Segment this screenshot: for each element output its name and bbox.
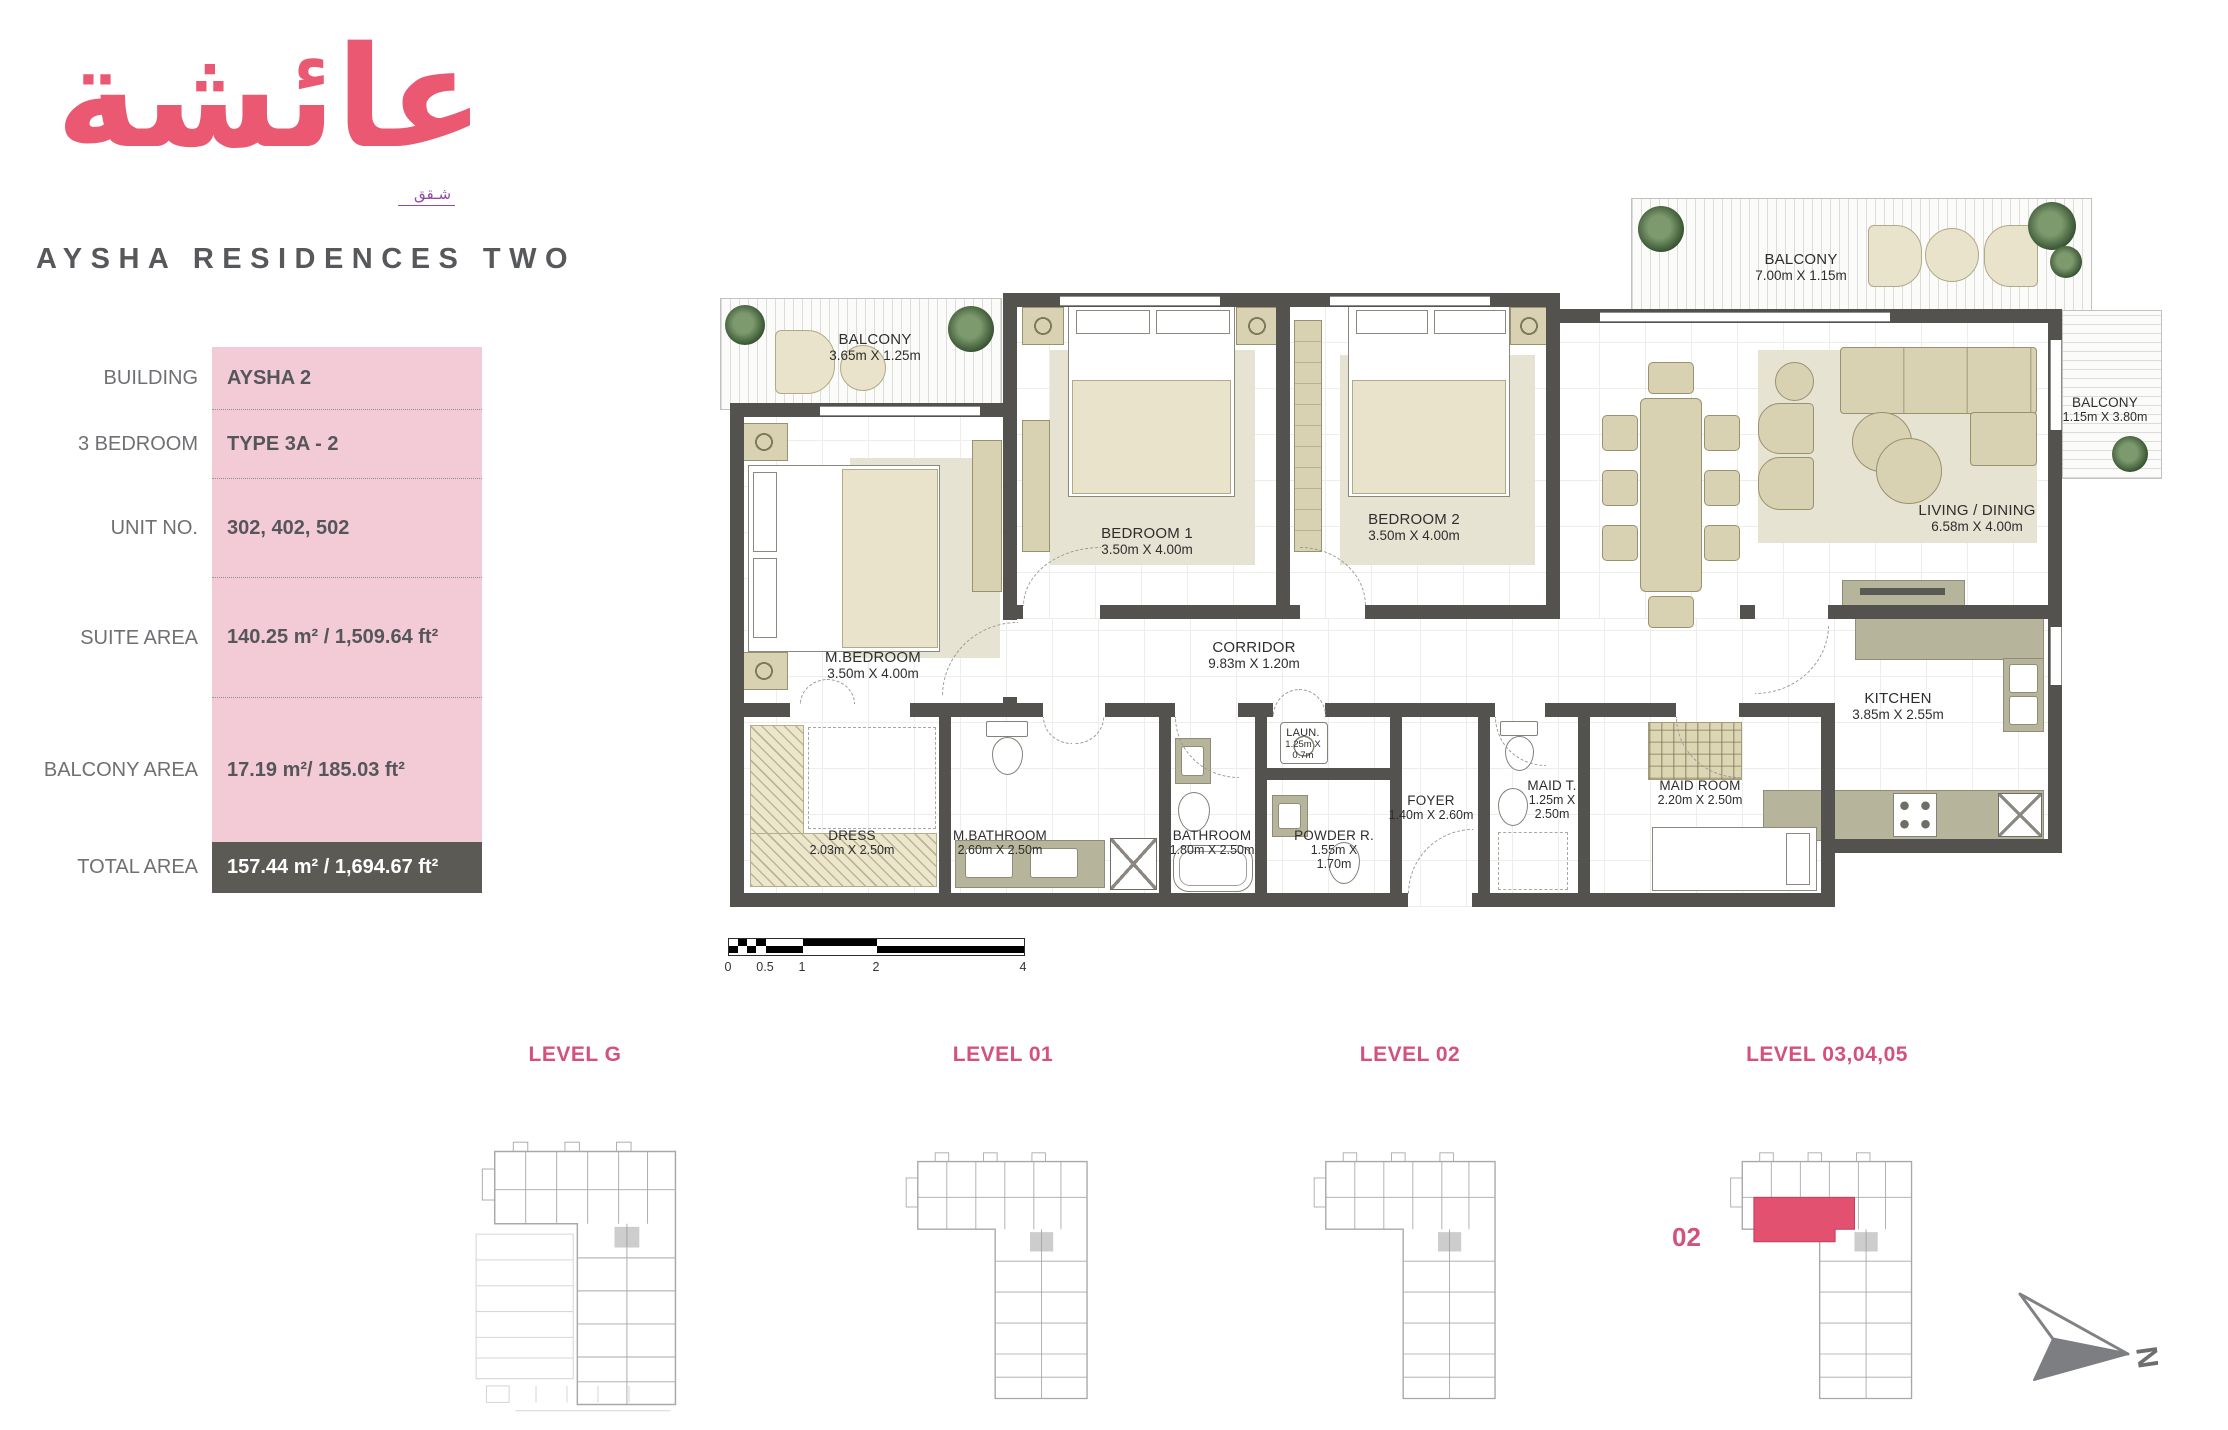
info-value: 302, 402, 502 — [212, 479, 482, 578]
coffee-table — [1876, 438, 1942, 504]
scale-label-1: 1 — [799, 960, 806, 974]
pillow — [753, 558, 777, 638]
pouf — [1775, 362, 1814, 401]
balcony-chair — [775, 330, 835, 394]
room-label-maid-room: MAID ROOM 2.20m X 2.50m — [1658, 778, 1743, 807]
pillow — [1786, 833, 1810, 885]
brand-title: AYSHA RESIDENCES TWO — [36, 243, 576, 276]
kitchen-counter-top — [1855, 618, 2044, 660]
window — [1060, 296, 1220, 306]
nightstand — [1510, 307, 1548, 345]
wall — [1255, 703, 1267, 907]
wall — [1003, 697, 1017, 717]
dining-chair — [1648, 362, 1694, 394]
scale-cell — [729, 939, 738, 946]
info-label: UNIT NO. — [0, 479, 212, 578]
scale-bar — [728, 938, 1025, 956]
dining-table — [1640, 398, 1702, 592]
blanket — [1072, 380, 1231, 494]
wall — [1821, 703, 1835, 907]
pillow — [1156, 310, 1230, 334]
wall — [910, 703, 1043, 717]
room-label-bedroom1: BEDROOM 1 3.50m X 4.00m — [1101, 525, 1193, 557]
blanket — [842, 469, 938, 648]
room-label-kitchen: KITCHEN 3.85m X 2.55m — [1852, 690, 1944, 722]
nightstand — [740, 423, 788, 461]
info-value: 140.25 m² / 1,509.64 ft² — [212, 578, 482, 698]
plant — [2028, 202, 2076, 250]
dining-chair — [1704, 525, 1740, 561]
wall — [1267, 768, 1402, 780]
nightstand — [1022, 307, 1064, 345]
info-row-balcony-area: BALCONY AREA 17.19 m²/ 185.03 ft² — [0, 698, 482, 842]
info-value: TYPE 3A - 2 — [212, 410, 482, 479]
shower-dashed — [1498, 832, 1568, 890]
wall — [1472, 893, 1835, 907]
dining-chair — [1602, 525, 1638, 561]
plant — [2050, 246, 2082, 278]
pillow — [1356, 310, 1428, 334]
sink-basin — [1278, 803, 1301, 829]
wall — [939, 717, 951, 907]
window — [820, 406, 980, 416]
key-plan-level-02 — [1288, 1118, 1528, 1413]
info-row-suite-area: SUITE AREA 140.25 m² / 1,509.64 ft² — [0, 578, 482, 698]
info-label: BUILDING — [0, 347, 212, 410]
room-label-powder: POWDER R. 1.55m X 1.70m — [1294, 828, 1374, 871]
nightstand — [1236, 307, 1278, 345]
room-label-balcony-side: BALCONY 1.15m X 3.80m — [2063, 395, 2148, 424]
nightstand — [740, 652, 788, 690]
logo-arabic: عائشة — [55, 18, 485, 179]
scale-label-2: 2 — [873, 960, 880, 974]
wall — [1545, 703, 1676, 717]
room-label-corridor: CORRIDOR 9.83m X 1.20m — [1208, 639, 1300, 671]
scale-cell — [766, 946, 803, 953]
info-value: 17.19 m²/ 185.03 ft² — [212, 698, 482, 842]
logo-arabic-subtitle: شـقق — [398, 185, 455, 206]
blanket — [1352, 380, 1506, 494]
tv — [1860, 588, 1945, 595]
dress-hanging — [808, 727, 936, 829]
sofa-vertical — [1970, 412, 2037, 466]
scale-cell — [756, 946, 766, 953]
info-row-building: BUILDING AYSHA 2 — [0, 347, 482, 410]
pillow — [753, 472, 777, 552]
dining-chair — [1602, 470, 1638, 506]
wall — [1828, 605, 2062, 619]
dining-chair — [1648, 596, 1694, 628]
balcony-chair — [1868, 225, 1922, 287]
closet — [1294, 320, 1322, 552]
toilet — [986, 721, 1028, 737]
highlighted-unit-label: 02 — [1672, 1222, 1701, 1253]
wall — [1325, 703, 1495, 717]
scale-cell — [756, 939, 766, 946]
fridge-box — [1998, 793, 2042, 837]
wall — [1478, 703, 1490, 907]
wall — [1740, 605, 1755, 619]
level-label-030405: LEVEL 03,04,05 — [1746, 1043, 1908, 1067]
info-label: TOTAL AREA — [0, 842, 212, 893]
dining-chair — [1704, 470, 1740, 506]
info-label: 3 BEDROOM — [0, 410, 212, 479]
north-arrow: N — [2008, 1288, 2158, 1393]
level-label-01: LEVEL 01 — [953, 1043, 1054, 1067]
room-label-balcony-top: BALCONY 7.00m X 1.15m — [1755, 251, 1847, 283]
scale-label-0: 0 — [725, 960, 732, 974]
plant — [1638, 206, 1684, 252]
floor-plan: BALCONY 3.65m X 1.25m BALCONY 7.00m X 1.… — [700, 140, 2178, 940]
window — [1330, 296, 1490, 306]
pillow — [1076, 310, 1150, 334]
brochure-page: عائشة شـقق AYSHA RESIDENCES TWO BUILDING… — [0, 0, 2228, 1430]
info-panel: BUILDING AYSHA 2 3 BEDROOM TYPE 3A - 2 U… — [0, 347, 482, 893]
room-label-balcony-tl: BALCONY 3.65m X 1.25m — [829, 331, 921, 363]
wall — [1003, 293, 1017, 620]
key-plan-level-01 — [880, 1118, 1120, 1413]
north-label: N — [2129, 1344, 2158, 1370]
armchair — [1758, 403, 1814, 454]
scale-cell — [803, 939, 877, 946]
dining-chair — [1704, 415, 1740, 451]
scale-label-05: 0.5 — [756, 960, 773, 974]
scale-label-4: 4 — [1020, 960, 1027, 974]
scale-cell — [747, 939, 756, 946]
plant — [725, 305, 765, 345]
exterior-patch — [1835, 853, 2062, 907]
room-label-bathroom: BATHROOM 1.80m X 2.50m — [1170, 828, 1255, 857]
info-row-type: 3 BEDROOM TYPE 3A - 2 — [0, 410, 482, 479]
level-label-02: LEVEL 02 — [1360, 1043, 1461, 1067]
balcony-table — [1925, 228, 1979, 282]
shower — [1110, 838, 1157, 890]
wardrobe — [1022, 420, 1050, 552]
room-label-laundry: LAUN. 1.25m X 0.7m — [1285, 727, 1320, 761]
pillow — [1434, 310, 1506, 334]
scale-cell — [729, 946, 738, 953]
kitchen-sink — [2009, 696, 2038, 725]
wardrobe — [972, 440, 1002, 592]
wall — [1578, 703, 1590, 907]
room-label-dress: DRESS 2.03m X 2.50m — [810, 828, 895, 857]
wall — [1276, 293, 1290, 619]
scale-cell — [747, 946, 756, 953]
wall — [1159, 717, 1171, 907]
info-row-total-area: TOTAL AREA 157.44 m² / 1,694.67 ft² — [0, 842, 482, 893]
dining-chair — [1602, 415, 1638, 451]
key-plan-level-g — [450, 1105, 715, 1420]
wall — [1365, 605, 1560, 619]
level-label-g: LEVEL G — [529, 1043, 622, 1067]
wall — [1105, 703, 1175, 717]
scale-cell — [738, 939, 747, 946]
scale-cell — [738, 946, 747, 953]
wall — [1546, 293, 1560, 619]
room-label-bedroom2: BEDROOM 2 3.50m X 4.00m — [1368, 511, 1460, 543]
info-label: BALCONY AREA — [0, 698, 212, 842]
scale-cell — [877, 939, 1024, 946]
wall — [1835, 839, 2062, 853]
room-label-m-bedroom: M.BEDROOM 3.50m X 4.00m — [825, 649, 921, 681]
key-plan-level-030405 — [1702, 1118, 1947, 1413]
kitchen-sink — [2009, 664, 2038, 693]
scale-cell — [803, 946, 877, 953]
sofa-horizontal — [1840, 347, 2037, 414]
plant — [2112, 436, 2148, 472]
armchair — [1758, 457, 1814, 510]
info-label: SUITE AREA — [0, 578, 212, 698]
info-value-total: 157.44 m² / 1,694.67 ft² — [212, 842, 482, 893]
wall — [730, 403, 744, 907]
wall — [1100, 605, 1300, 619]
window — [2050, 340, 2062, 430]
plant — [948, 306, 994, 352]
room-label-m-bathroom: M.BATHROOM 2.60m X 2.50m — [953, 828, 1047, 857]
stove — [1893, 793, 1937, 837]
wall — [730, 893, 1408, 907]
window — [1600, 312, 1890, 322]
room-label-foyer: FOYER 1.40m X 2.60m — [1389, 793, 1474, 822]
info-value: AYSHA 2 — [212, 347, 482, 410]
scale-cell — [766, 939, 803, 946]
info-row-unit-no: UNIT NO. 302, 402, 502 — [0, 479, 482, 578]
room-label-living: LIVING / DINING 6.58m X 4.00m — [1918, 502, 2035, 534]
scale-cell — [877, 946, 1024, 953]
window — [2050, 627, 2062, 685]
room-label-maid-t: MAID T. 1.25m X 2.50m — [1527, 778, 1576, 821]
